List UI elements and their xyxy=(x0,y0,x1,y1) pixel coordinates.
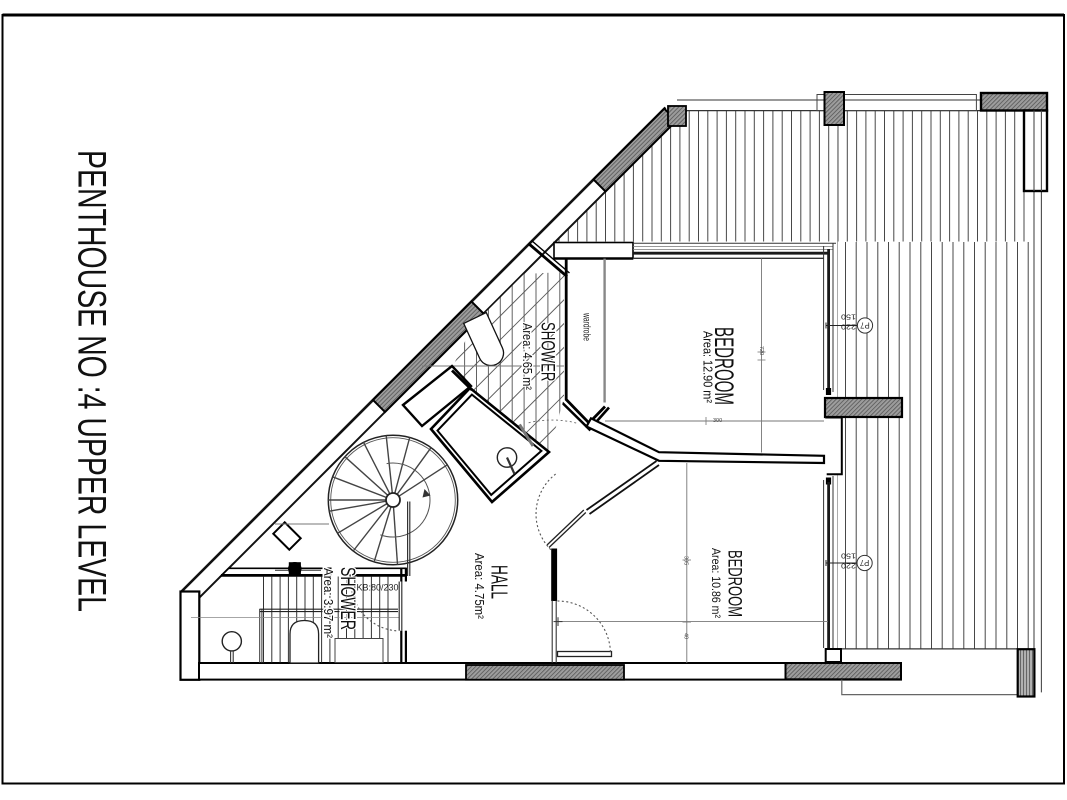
svg-text:300: 300 xyxy=(713,418,722,424)
svg-text:720: 720 xyxy=(758,346,764,355)
svg-text:HALL: HALL xyxy=(487,565,513,599)
svg-text:Area: 12.90 m²: Area: 12.90 m² xyxy=(701,331,715,403)
svg-text:PENTHOUSE NO :4 UPPER LEVEL: PENTHOUSE NO :4 UPPER LEVEL xyxy=(70,150,114,612)
svg-text:KB:80/230: KB:80/230 xyxy=(357,583,399,594)
svg-text:220: 220 xyxy=(841,323,856,332)
svg-text:P7: P7 xyxy=(860,558,870,567)
svg-text:150: 150 xyxy=(841,552,856,561)
svg-text:220: 220 xyxy=(841,562,856,571)
svg-text:SHOWER: SHOWER xyxy=(336,567,359,630)
svg-text:BEDROOM: BEDROOM xyxy=(724,550,746,617)
svg-text:40: 40 xyxy=(683,633,689,639)
svg-text:Area: 4.75m²: Area: 4.75m² xyxy=(472,553,486,619)
svg-text:P7: P7 xyxy=(860,321,870,330)
svg-text:305: 305 xyxy=(683,556,689,565)
svg-text:Area: 4.65 m²: Area: 4.65 m² xyxy=(520,323,535,391)
svg-text:wardrobe: wardrobe xyxy=(581,312,593,341)
svg-text:150: 150 xyxy=(841,313,856,322)
svg-text:Area: 10.86 m²: Area: 10.86 m² xyxy=(709,548,723,618)
svg-text:Area: 3.97 m²: Area: 3.97 m² xyxy=(321,568,335,638)
svg-text:SHOWER: SHOWER xyxy=(537,322,558,381)
